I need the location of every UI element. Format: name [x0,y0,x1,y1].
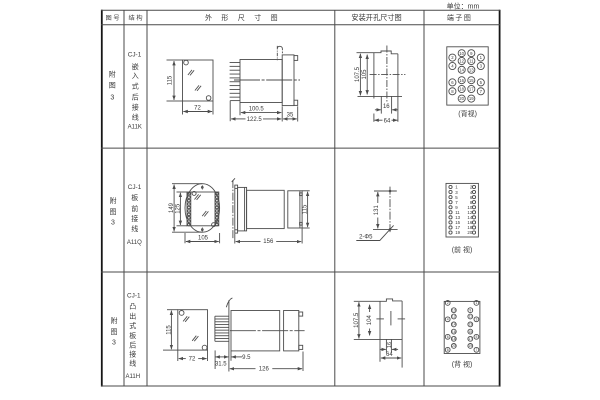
svg-text:16: 16 [383,104,390,110]
svg-text:(背视): (背视) [458,109,477,118]
svg-text:107.5: 107.5 [354,312,360,328]
svg-text:板: 板 [129,331,136,340]
svg-text:14: 14 [452,323,456,327]
svg-text:17: 17 [468,337,472,341]
svg-text:附: 附 [110,196,117,205]
svg-text:12: 12 [452,315,456,319]
svg-text:9: 9 [469,308,471,312]
svg-text:CJ-1: CJ-1 [128,184,142,191]
svg-text:149: 149 [169,202,175,213]
svg-text:6: 6 [447,335,449,339]
svg-text:附: 附 [109,70,116,79]
svg-text:(前 视): (前 视) [452,245,473,254]
svg-text:CJ-1: CJ-1 [127,293,141,300]
svg-text:125: 125 [175,203,181,214]
svg-text:7: 7 [475,348,477,352]
svg-text:14: 14 [459,67,464,72]
svg-text:3: 3 [111,220,115,227]
svg-text:8: 8 [451,89,454,94]
svg-text:17: 17 [469,87,474,92]
svg-text:图: 图 [271,14,278,22]
svg-text:入: 入 [132,72,139,80]
svg-text:3: 3 [480,64,483,69]
svg-text:126: 126 [259,367,270,373]
svg-text:附: 附 [111,316,118,325]
svg-text:线: 线 [131,224,138,233]
svg-text:图: 图 [110,208,117,216]
svg-text:19: 19 [455,230,460,235]
svg-text:122.5: 122.5 [247,117,263,123]
svg-text:(背 视): (背 视) [452,359,473,368]
svg-text:31.5: 31.5 [215,362,227,368]
svg-text:线: 线 [132,113,139,122]
svg-text:19: 19 [469,96,474,101]
svg-text:3: 3 [110,95,114,102]
svg-text:1: 1 [475,301,477,305]
svg-text:8: 8 [447,348,449,352]
svg-text:13: 13 [469,67,474,72]
svg-text:5: 5 [475,335,477,339]
svg-text:72: 72 [194,105,201,111]
svg-text:线: 线 [129,358,136,367]
svg-text:出: 出 [129,312,136,321]
svg-text:寸: 寸 [254,13,261,22]
svg-text:A11H: A11H [126,374,141,380]
svg-text:20: 20 [452,344,456,348]
svg-text:2: 2 [447,301,449,305]
svg-text:1: 1 [480,55,483,60]
svg-text:10: 10 [459,51,464,56]
svg-text:端子图: 端子图 [447,13,473,22]
svg-text:72: 72 [189,357,196,363]
svg-text:接: 接 [132,103,139,112]
svg-text:115: 115 [166,325,172,335]
svg-text:12: 12 [459,59,464,64]
svg-text:18: 18 [459,87,464,92]
svg-text:接: 接 [131,214,138,223]
svg-text:后: 后 [129,340,136,349]
svg-text:接: 接 [129,350,136,359]
svg-text:4: 4 [447,318,449,322]
svg-text:安装开孔尺寸图: 安装开孔尺寸图 [351,13,401,22]
svg-text:尺: 尺 [238,14,245,22]
svg-text:105: 105 [362,69,368,80]
svg-text:嵌: 嵌 [132,63,139,71]
svg-text:105: 105 [198,235,209,241]
svg-text:64: 64 [386,352,393,358]
svg-text:2: 2 [451,55,454,60]
svg-text:凸: 凸 [129,303,136,311]
svg-text:100.5: 100.5 [249,106,265,112]
svg-text:3: 3 [112,339,116,346]
svg-text:15: 15 [469,78,474,83]
svg-text:16: 16 [459,78,464,83]
svg-text:156: 156 [263,239,274,245]
svg-text:7: 7 [480,89,483,94]
svg-text:11: 11 [469,59,474,64]
svg-text:20: 20 [467,230,472,235]
svg-text:板: 板 [131,193,138,202]
svg-text:3: 3 [475,318,477,322]
svg-text:6: 6 [451,80,454,85]
svg-text:CJ-1: CJ-1 [128,51,142,58]
svg-text:外: 外 [205,13,212,22]
svg-text:15: 15 [468,330,472,334]
svg-text:19: 19 [468,344,472,348]
svg-text:18: 18 [452,337,456,341]
svg-text:式: 式 [132,82,139,91]
svg-text:图: 图 [109,82,116,90]
svg-text:5: 5 [480,80,483,85]
svg-text:16: 16 [452,330,456,334]
svg-text:10: 10 [452,308,456,312]
svg-text:式: 式 [129,321,136,330]
svg-text:9.5: 9.5 [242,355,251,361]
svg-text:35: 35 [287,113,294,119]
svg-text:2-Φ5: 2-Φ5 [359,235,373,241]
svg-text:图: 图 [111,328,118,336]
svg-text:131: 131 [374,205,380,216]
svg-text:64: 64 [384,118,391,124]
svg-text:结 构: 结 构 [128,14,142,22]
svg-text:9: 9 [470,51,473,56]
svg-text:13: 13 [468,323,472,327]
svg-text:图 号: 图 号 [105,15,119,22]
svg-text:115: 115 [303,204,309,214]
svg-text:A11K: A11K [128,124,142,130]
svg-text:16: 16 [387,342,393,348]
svg-text:A11Q: A11Q [127,240,142,246]
svg-text:前: 前 [131,204,138,213]
svg-text:11: 11 [469,315,473,319]
svg-text:115: 115 [168,75,174,85]
svg-text:104: 104 [367,315,373,326]
svg-text:单位：mm: 单位：mm [447,2,480,11]
svg-text:后: 后 [132,93,139,102]
svg-text:20: 20 [459,96,464,101]
svg-text:4: 4 [451,64,454,69]
svg-text:形: 形 [221,14,228,22]
svg-text:107.5: 107.5 [355,66,361,82]
